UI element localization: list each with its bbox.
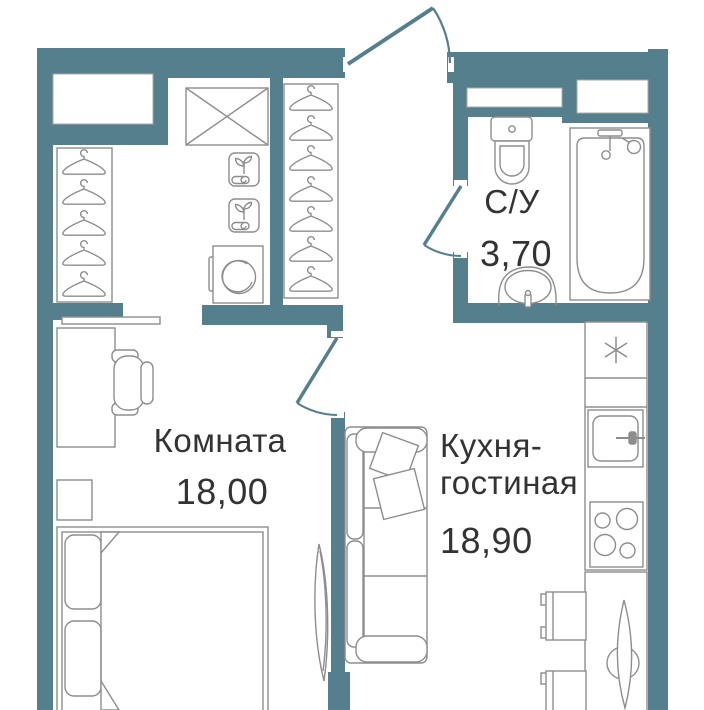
washing-machine-icon [209,246,263,303]
bedroom-area: 18,00 [176,471,269,512]
toilet-icon [491,117,532,184]
entrance-door-icon [348,8,450,64]
bedroom-label: Комната [154,422,287,459]
jamb-bath-top [454,180,467,186]
hanger-rack-left [57,148,112,302]
floor-plan: Комната 18,00 Кухня- гостиная 18,90 С/У … [0,0,704,710]
niche-topleft [53,74,153,124]
throw-pillow [374,469,425,520]
jamb-room-top [331,331,344,337]
stove-icon [590,502,643,567]
chair-icon [541,592,586,640]
wall-middle-pier [328,672,350,710]
wall-right-outer [648,49,668,710]
pillow [65,621,101,696]
pillow [65,535,101,609]
bathtub-icon [570,128,650,300]
kitchen-sink-icon [588,410,645,467]
shelf-plant-icon [229,199,259,232]
kitchen-counter [585,322,647,570]
crossed-cabinet-icon [186,88,268,145]
hanger-rack-right [284,84,338,298]
dining-table-icon [585,572,647,710]
wall-wardrobe-inner [270,78,283,307]
wall-wardrobe-bottom-right [202,305,343,325]
door-jambs [331,57,467,418]
leaning-mirror-icon [315,544,328,681]
niche-bath-b [577,80,648,113]
nightstand [57,480,92,520]
wall-bath-niche-b-bottom [573,113,652,123]
office-chair-icon [112,350,153,415]
chair-icon [541,671,586,710]
jamb-entrance-left [343,57,349,72]
shelf-plant-icon [229,153,259,186]
kitchen-living-label-line1: Кухня- [440,427,542,464]
double-bed-icon [57,527,268,710]
wall-left-outer [37,48,53,710]
desk [57,328,115,447]
wall-middle-vertical [331,412,345,672]
kitchen-living-label-line2: гостиная [440,464,578,501]
bathroom-label: С/У [484,183,540,220]
sliding-panel [62,317,160,324]
bathroom-door-icon [424,186,461,256]
bedroom-door-icon [297,338,337,415]
kitchen-living-area: 18,90 [440,520,533,561]
niche-bath-a [467,88,562,107]
wall-top-right [447,52,668,83]
bathroom-area: 3,70 [480,233,552,274]
sofa-icon [345,427,427,663]
wall-bath-bottom [453,303,668,323]
